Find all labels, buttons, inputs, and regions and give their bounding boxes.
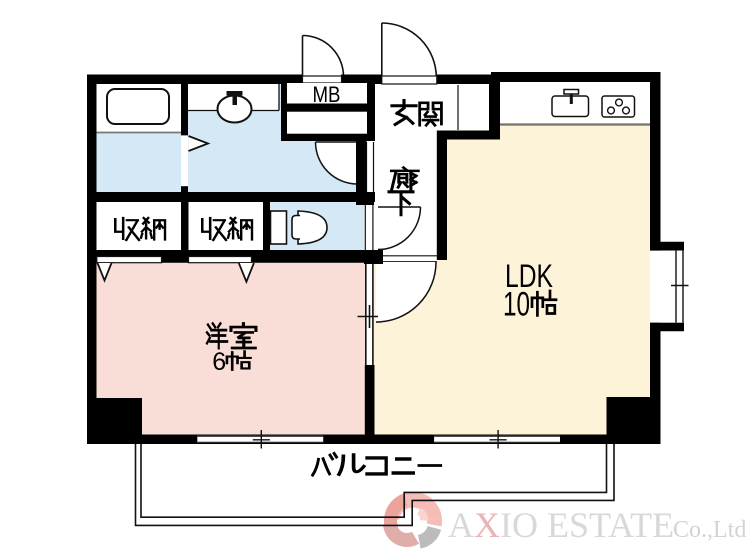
svg-text:10: 10 bbox=[503, 286, 530, 324]
svg-text:Co.,Ltd: Co.,Ltd bbox=[673, 517, 746, 543]
svg-text:MB: MB bbox=[313, 82, 341, 107]
svg-text:6: 6 bbox=[212, 348, 226, 376]
svg-text:AXIO ESTATE: AXIO ESTATE bbox=[448, 505, 674, 545]
